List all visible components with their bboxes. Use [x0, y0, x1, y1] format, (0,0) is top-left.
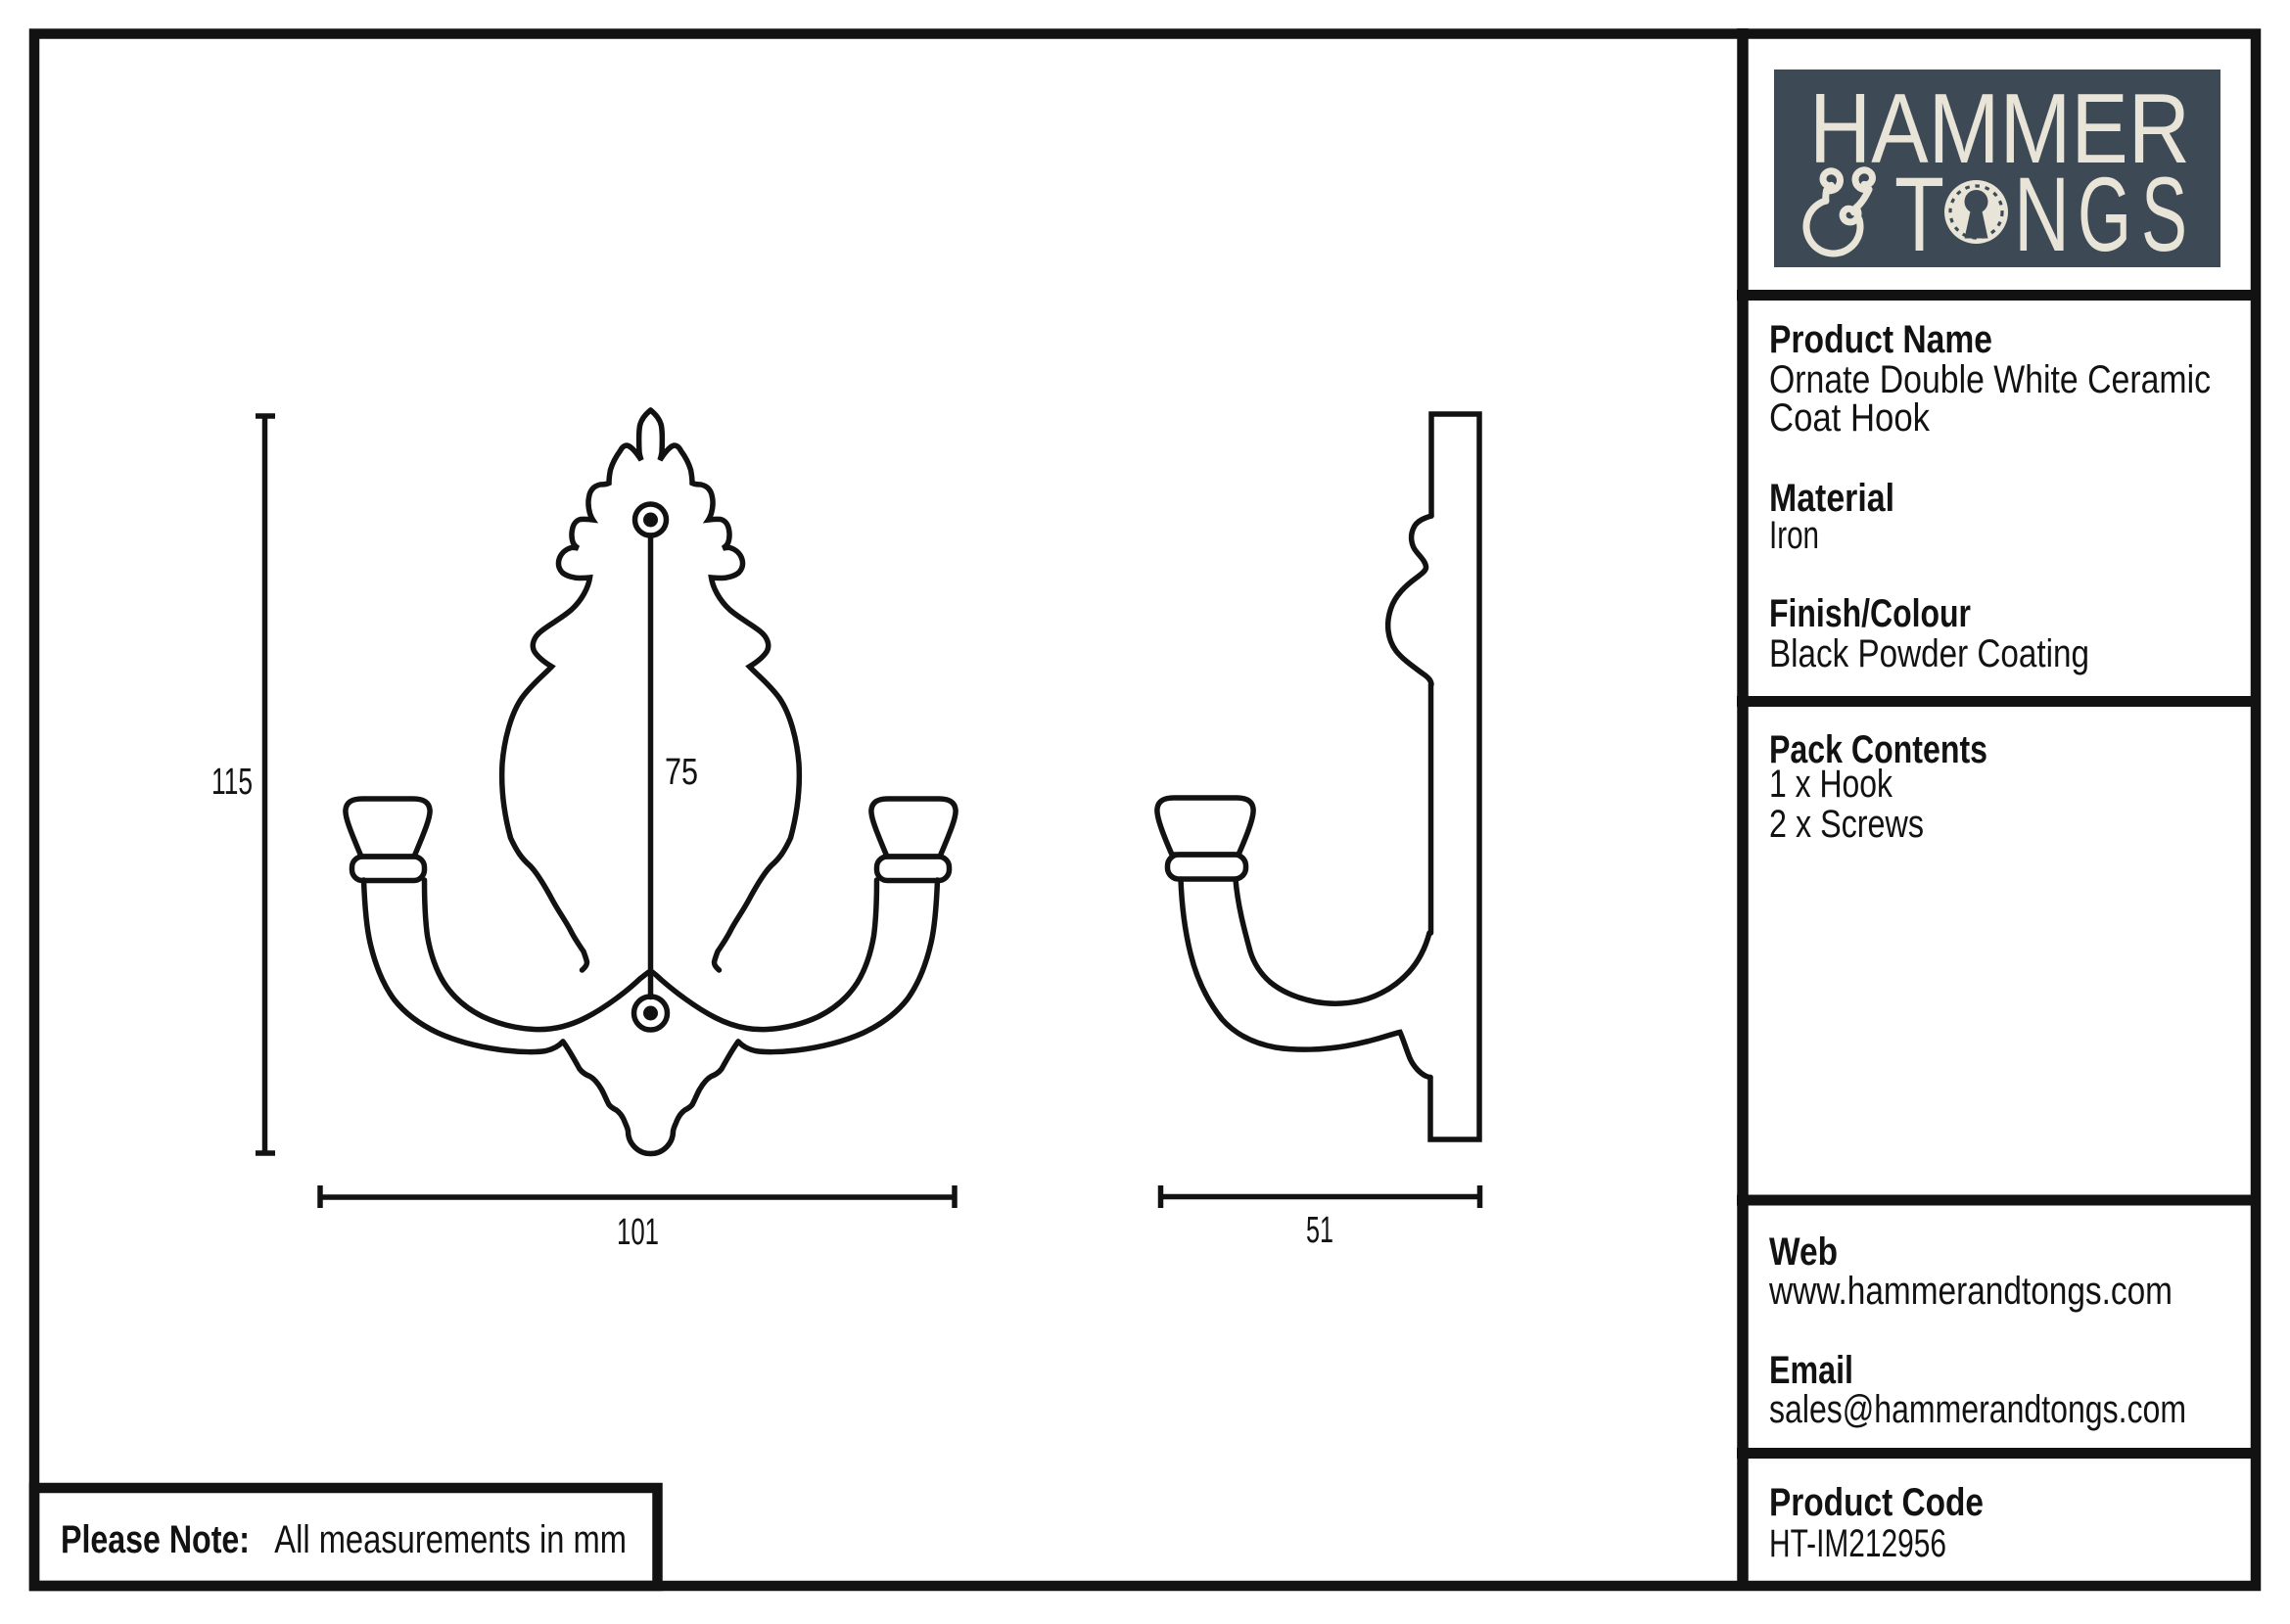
svg-text:Black Powder Coating: Black Powder Coating	[1769, 632, 2089, 675]
svg-text:75: 75	[665, 752, 698, 793]
svg-text:HT-IM212956: HT-IM212956	[1769, 1522, 1946, 1565]
svg-text:T: T	[1894, 155, 1944, 273]
svg-text:sales@hammerandtongs.com: sales@hammerandtongs.com	[1769, 1388, 2186, 1431]
svg-text:Ornate Double White Ceramic: Ornate Double White Ceramic	[1769, 358, 2211, 401]
svg-text:Iron: Iron	[1769, 514, 1819, 557]
svg-text:G: G	[2078, 155, 2131, 273]
svg-text:1 x Hook: 1 x Hook	[1769, 763, 1893, 806]
svg-text:101: 101	[617, 1212, 659, 1253]
svg-text:115: 115	[211, 762, 253, 803]
svg-text:Web: Web	[1769, 1230, 1838, 1274]
svg-text:www.hammerandtongs.com: www.hammerandtongs.com	[1768, 1270, 2173, 1313]
svg-text:Product Code: Product Code	[1769, 1481, 1984, 1524]
svg-text:Coat Hook: Coat Hook	[1769, 396, 1931, 440]
svg-text:51: 51	[1306, 1210, 1333, 1251]
svg-text:Please Note: All measurements: Please Note: All measurements in mm	[61, 1518, 627, 1561]
svg-text:Finish/Colour: Finish/Colour	[1769, 592, 1971, 635]
svg-text:2 x Screws: 2 x Screws	[1769, 803, 1924, 846]
svg-text:Product Name: Product Name	[1769, 318, 1992, 361]
svg-text:Email: Email	[1769, 1349, 1853, 1392]
svg-text:S: S	[2141, 155, 2187, 273]
svg-text:N: N	[2014, 155, 2070, 273]
